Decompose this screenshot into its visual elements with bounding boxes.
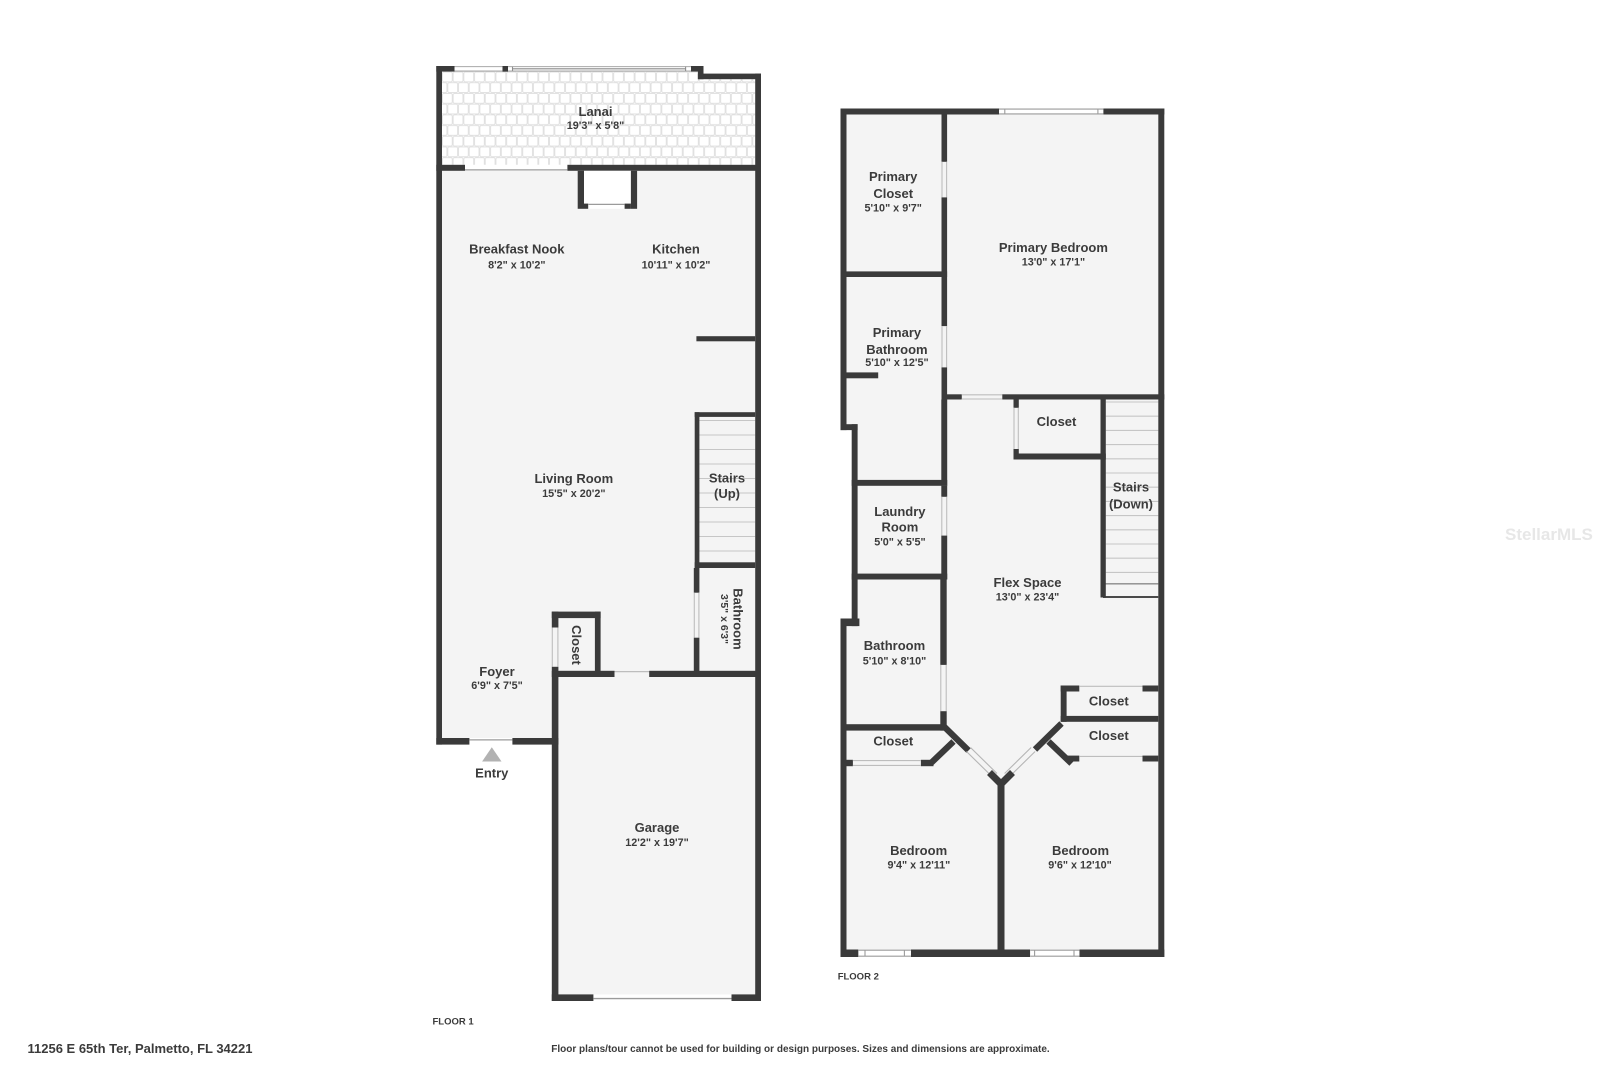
svg-text:Closet: Closet [1037, 414, 1077, 429]
svg-text:Closet: Closet [569, 625, 584, 665]
svg-text:6'9" x 7'5": 6'9" x 7'5" [471, 680, 522, 692]
svg-text:Closet: Closet [873, 734, 913, 749]
svg-text:Laundry: Laundry [874, 504, 926, 519]
svg-text:FLOOR 1: FLOOR 1 [433, 1017, 475, 1028]
svg-text:Bedroom: Bedroom [1052, 843, 1109, 858]
svg-text:15'5" x 20'2": 15'5" x 20'2" [542, 488, 605, 500]
svg-text:9'6" x 12'10": 9'6" x 12'10" [1048, 860, 1111, 872]
svg-text:Foyer: Foyer [479, 664, 514, 679]
svg-text:Room: Room [881, 520, 918, 535]
svg-text:Breakfast Nook: Breakfast Nook [469, 242, 565, 257]
svg-text:(Down): (Down) [1109, 497, 1153, 512]
svg-text:3'5" x 6'3": 3'5" x 6'3" [718, 594, 730, 644]
svg-text:10'11" x 10'2": 10'11" x 10'2" [642, 260, 711, 272]
svg-text:Primary Bedroom: Primary Bedroom [999, 240, 1108, 255]
svg-text:Primary: Primary [873, 325, 922, 340]
svg-text:19'3" x 5'8": 19'3" x 5'8" [567, 120, 624, 132]
svg-text:Bathroom: Bathroom [866, 342, 927, 357]
svg-text:Floor plans/tour cannot be use: Floor plans/tour cannot be used for buil… [551, 1044, 1050, 1055]
svg-text:5'10" x 12'5": 5'10" x 12'5" [865, 357, 928, 369]
svg-text:5'10" x 8'10": 5'10" x 8'10" [863, 656, 926, 668]
svg-text:13'0" x 17'1": 13'0" x 17'1" [1022, 257, 1085, 269]
svg-text:FLOOR 2: FLOOR 2 [838, 972, 879, 983]
svg-text:StellarMLS: StellarMLS [1505, 525, 1593, 544]
svg-text:Closet: Closet [1089, 694, 1129, 709]
svg-text:Bathroom: Bathroom [731, 588, 746, 649]
svg-text:12'2" x 19'7": 12'2" x 19'7" [625, 837, 688, 849]
svg-text:Living Room: Living Room [534, 471, 613, 486]
svg-text:5'0" x 5'5": 5'0" x 5'5" [874, 537, 925, 549]
svg-text:Stairs: Stairs [709, 471, 745, 486]
svg-text:(Up): (Up) [714, 486, 740, 501]
svg-text:Lanai: Lanai [579, 104, 613, 119]
svg-text:Bathroom: Bathroom [864, 638, 925, 653]
svg-text:5'10" x 9'7": 5'10" x 9'7" [864, 203, 921, 215]
svg-text:Closet: Closet [1089, 728, 1129, 743]
svg-text:Closet: Closet [873, 186, 913, 201]
svg-text:13'0" x 23'4": 13'0" x 23'4" [996, 592, 1059, 604]
svg-text:Primary: Primary [869, 169, 918, 184]
svg-text:11256 E 65th Ter, Palmetto, FL: 11256 E 65th Ter, Palmetto, FL 34221 [28, 1041, 253, 1056]
svg-text:8'2" x 10'2": 8'2" x 10'2" [488, 260, 545, 272]
svg-text:Flex Space: Flex Space [994, 575, 1062, 590]
svg-text:Stairs: Stairs [1113, 480, 1149, 495]
svg-text:Garage: Garage [635, 820, 680, 835]
svg-text:Entry: Entry [475, 766, 509, 781]
svg-text:Bedroom: Bedroom [890, 843, 947, 858]
svg-text:9'4" x 12'11": 9'4" x 12'11" [887, 860, 950, 872]
svg-text:Kitchen: Kitchen [652, 242, 700, 257]
